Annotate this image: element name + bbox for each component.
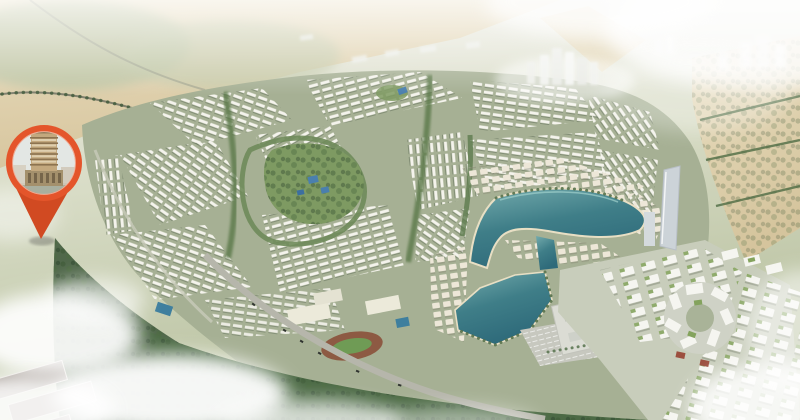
cloud bbox=[45, 278, 145, 322]
plaza-green bbox=[686, 304, 714, 332]
pin-shadow bbox=[29, 237, 55, 246]
aerial-masterplan-render bbox=[0, 0, 800, 420]
haze-cloud bbox=[600, 52, 790, 132]
aerial-scene bbox=[0, 0, 800, 420]
mid-rise-tower bbox=[644, 212, 655, 246]
